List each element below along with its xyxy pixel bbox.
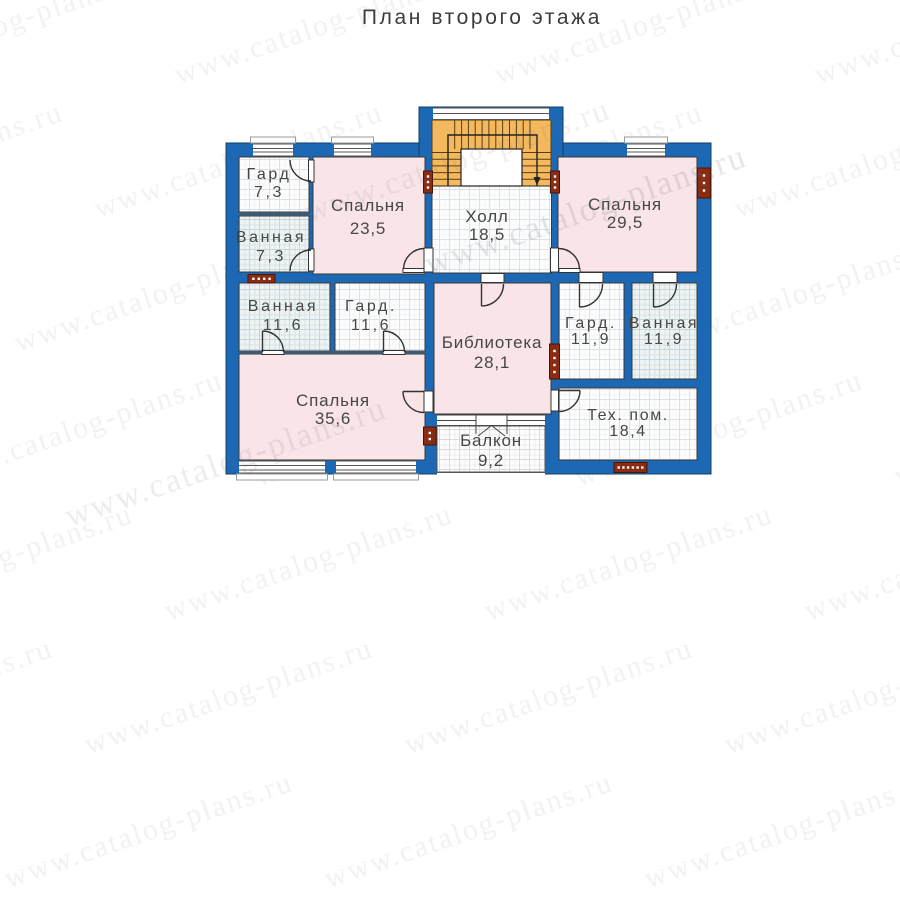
svg-text:Ванная: Ванная [236, 229, 306, 246]
svg-text:Балкон: Балкон [460, 431, 522, 450]
svg-text:23,5: 23,5 [350, 219, 386, 238]
svg-text:9,2: 9,2 [478, 451, 504, 470]
svg-text:Гард.: Гард. [565, 315, 617, 332]
svg-text:Ванная: Ванная [629, 315, 699, 332]
svg-text:Тех. пом.: Тех. пом. [587, 407, 669, 424]
svg-text:Гард.: Гард. [345, 298, 397, 315]
svg-text:11,9: 11,9 [571, 331, 611, 348]
svg-text:7,3: 7,3 [254, 184, 284, 201]
svg-text:11,6: 11,6 [263, 317, 303, 334]
svg-text:Библиотека: Библиотека [442, 333, 542, 352]
svg-text:28,1: 28,1 [474, 353, 510, 372]
svg-text:Ванная: Ванная [248, 298, 318, 315]
svg-text:7,3: 7,3 [256, 248, 286, 265]
svg-text:11,6: 11,6 [351, 317, 391, 334]
svg-text:18,4: 18,4 [609, 423, 647, 440]
svg-text:Гард: Гард [247, 166, 292, 183]
svg-text:11,9: 11,9 [644, 331, 684, 348]
